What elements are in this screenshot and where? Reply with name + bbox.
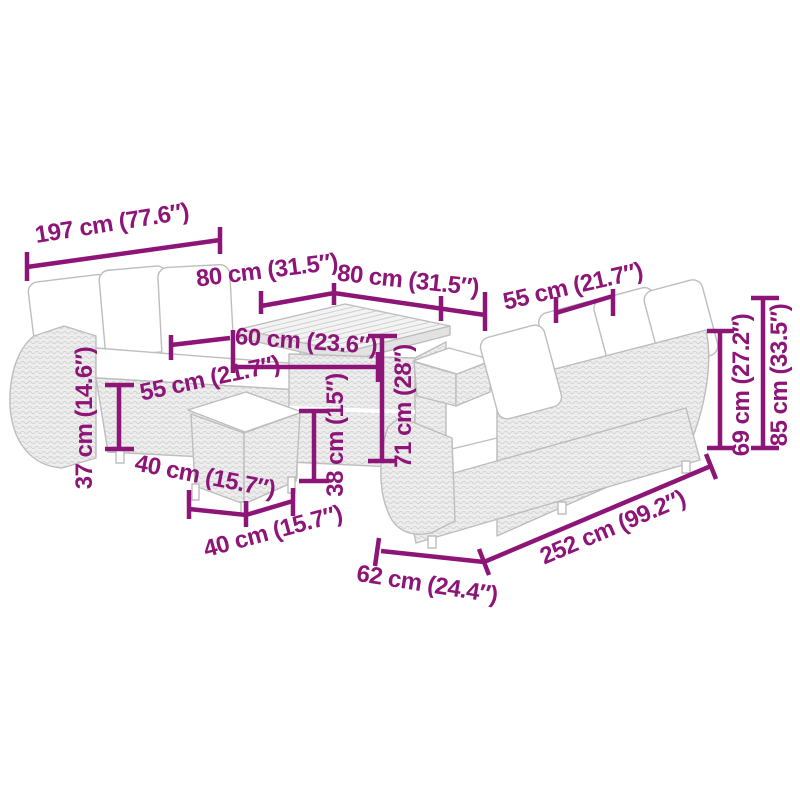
left-sofa-foot	[116, 450, 124, 463]
rear-stool-drawing	[413, 348, 493, 406]
right-sofa-foot	[428, 536, 436, 548]
dim-label-right-sofa-back-height: 69 cm (27.2″)	[728, 314, 756, 456]
dimension-diagram: 197 cm (77.6″) 80 cm (31.5″) 80 cm (31.5…	[0, 0, 800, 800]
dim-label-table-height: 71 cm (28″)	[390, 344, 418, 467]
right-sofa-foot	[682, 461, 690, 473]
dim-label-right-sofa-total-height: 85 cm (33.5″)	[766, 304, 794, 446]
dim-label-left-sofa-seat-height: 37 cm (14.6″)	[71, 347, 99, 489]
right-sofa-foot	[558, 502, 566, 514]
dim-label-stool-height: 38 cm (15″)	[322, 373, 350, 496]
